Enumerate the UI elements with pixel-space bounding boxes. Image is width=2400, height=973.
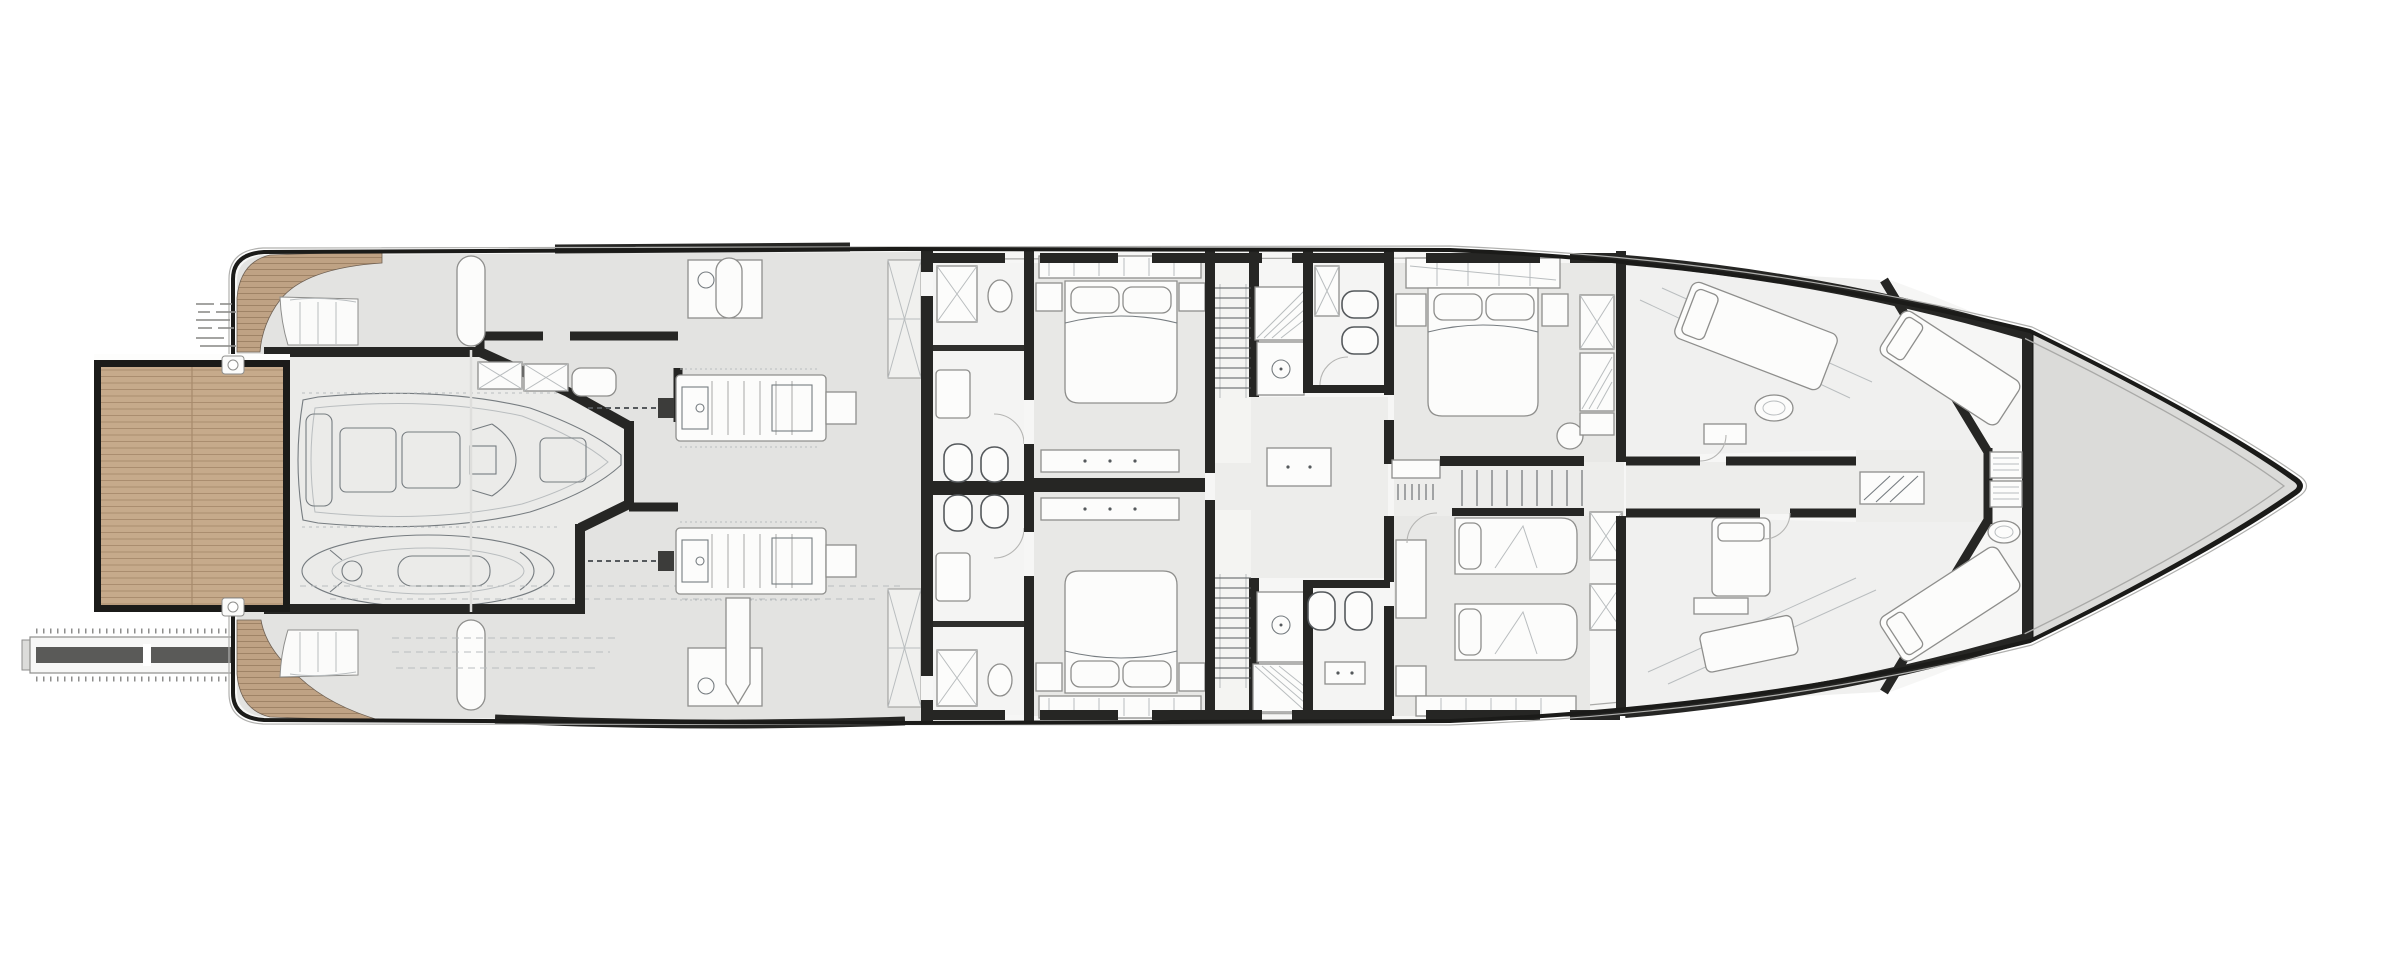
crew-mess-table (1860, 472, 1924, 504)
vip-partition (1384, 516, 1394, 582)
pillow (1459, 609, 1481, 655)
pillow (1718, 523, 1764, 541)
cabin-partition (1024, 251, 1034, 721)
vanity (1325, 662, 1365, 684)
vip-bathroom-starboard (1308, 588, 1380, 716)
partition (1303, 251, 1313, 393)
cabinet (1580, 413, 1614, 435)
locker (1990, 481, 2022, 507)
washbasin (1308, 592, 1335, 630)
door-opening (1024, 400, 1034, 444)
vanity (936, 553, 970, 601)
yacht-lower-deck-plan (0, 0, 2400, 973)
collision-bulkhead (2022, 331, 2032, 641)
vanity (936, 370, 970, 418)
deck-seat (572, 368, 616, 396)
pillow (1071, 661, 1119, 687)
liferaft-locker (457, 620, 485, 710)
shaft-flange (658, 551, 674, 571)
guest-cabin-aft-starboard (1034, 492, 1205, 718)
door-opening (921, 676, 933, 700)
vip-bathroom-port (1313, 263, 1380, 385)
forward-partition (1616, 251, 1626, 462)
nightstand (1396, 666, 1426, 696)
staircase-aft-port (1205, 251, 1259, 473)
pillow (1486, 294, 1534, 320)
shaft-flange (658, 398, 674, 418)
vip-cabin (1394, 258, 1620, 462)
twin-cabin (1394, 512, 1622, 716)
nightstand (1396, 294, 1426, 326)
crew-corridor (1626, 462, 1858, 514)
pillow (1123, 661, 1171, 687)
washbasin (1342, 291, 1378, 318)
swim-platform (94, 354, 290, 616)
deck-plan-drawing (0, 0, 2400, 973)
centerline-wall (1034, 478, 1205, 492)
bow-void (2032, 332, 2299, 640)
pillow (1071, 287, 1119, 313)
guest-cabin-aft-port (1034, 256, 1205, 478)
boarding-stairs-starboard (888, 589, 921, 707)
transom-window-starboard (280, 630, 358, 677)
crew-section (1626, 266, 2023, 706)
corridor (1392, 456, 1624, 518)
vip-partition (1384, 606, 1394, 716)
toilet (988, 280, 1012, 312)
aft-guest-bathrooms (933, 263, 1024, 715)
crew-wc (1755, 395, 1793, 421)
lobby-cabinet (1267, 448, 1331, 486)
muffler (716, 258, 742, 318)
transom-window-port (280, 297, 358, 345)
boarding-stairs-port (888, 260, 921, 378)
nightstand (1179, 663, 1205, 691)
bathtub (944, 444, 972, 482)
partition (1303, 385, 1390, 393)
washbasin (981, 447, 1008, 482)
engine-room-bulkhead (921, 251, 933, 721)
pillow (1434, 294, 1482, 320)
washbasin (1345, 592, 1372, 630)
nightstand (1036, 283, 1062, 311)
desk (1694, 598, 1748, 614)
washbasin (981, 495, 1008, 528)
partition (1303, 580, 1390, 588)
washbasin (1342, 327, 1378, 354)
crew-wc (1988, 521, 2020, 543)
pillow (1123, 287, 1171, 313)
nightstand (1036, 663, 1062, 691)
door-opening (1024, 532, 1034, 576)
toilet (988, 664, 1012, 696)
vip-partition (1384, 251, 1394, 395)
nightstand (1179, 283, 1205, 311)
forward-partition (1616, 516, 1626, 716)
vip-partition (1384, 420, 1394, 464)
washbasin-cabinet (1257, 592, 1304, 662)
armchair (1557, 423, 1583, 449)
door-opening (921, 272, 933, 296)
side-cabinet (1396, 540, 1426, 618)
nightstand (1542, 294, 1568, 326)
liferaft-locker (457, 256, 485, 346)
staircase-aft-starboard (1205, 500, 1259, 716)
muffler (726, 598, 750, 704)
corridor-cabinet (1392, 460, 1440, 478)
bow-area (2022, 331, 2299, 641)
annotation-scribbles (196, 304, 236, 346)
passerelle-joint (143, 644, 151, 666)
generator (688, 648, 762, 706)
pillow (1459, 523, 1481, 569)
bathtub (944, 495, 972, 531)
locker (1990, 452, 2022, 478)
